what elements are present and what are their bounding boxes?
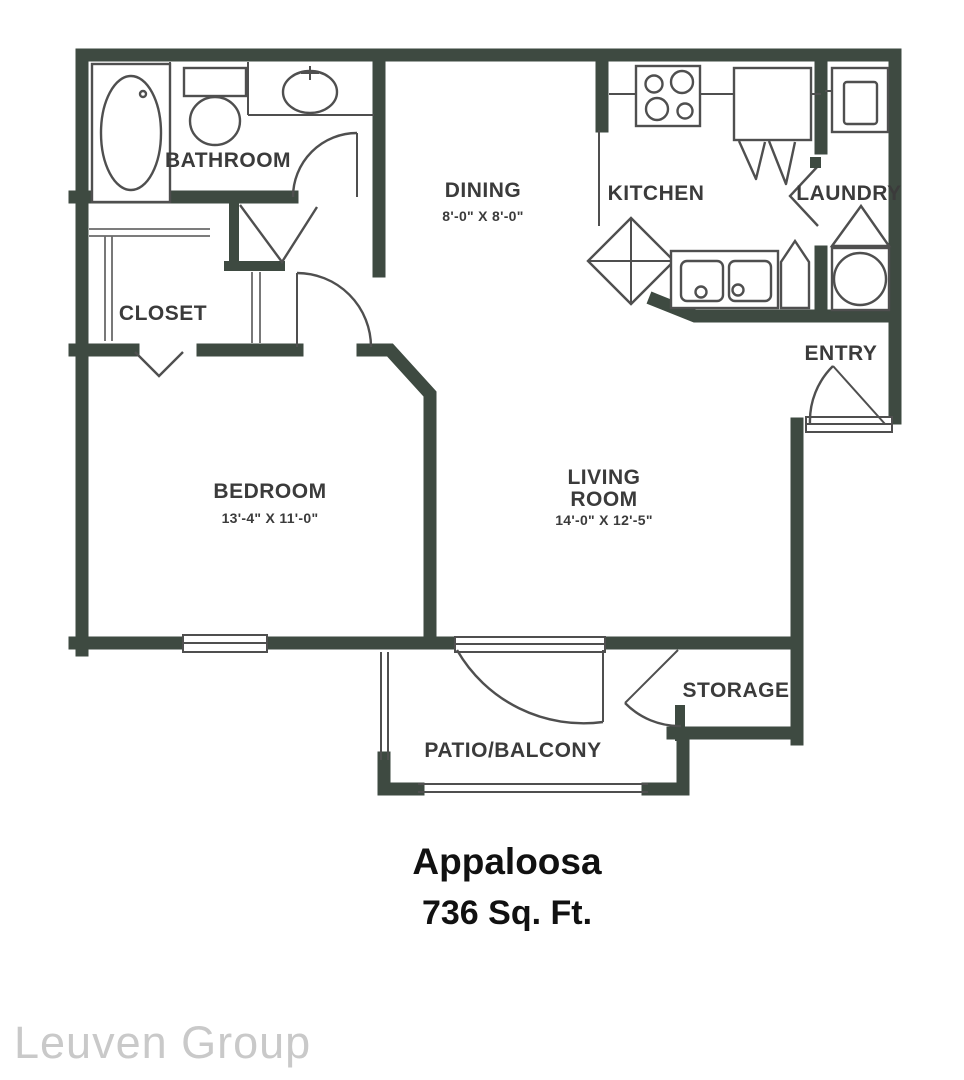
refrigerator-icon bbox=[734, 68, 811, 184]
dining-dimensions: 8'-0" X 8'-0" bbox=[442, 208, 523, 224]
watermark-text: Leuven Group bbox=[14, 1017, 311, 1068]
corner-cabinet-icon bbox=[781, 241, 809, 308]
patio-railing bbox=[381, 652, 648, 792]
closet-bifold-door bbox=[135, 352, 183, 376]
double-sink-icon bbox=[671, 251, 778, 308]
bedroom-dimensions: 13'-4" X 11'-0" bbox=[222, 510, 319, 526]
bedroom-label: BEDROOM bbox=[213, 480, 326, 503]
plan-area: 736 Sq. Ft. bbox=[422, 894, 592, 932]
storage-label: STORAGE bbox=[683, 679, 790, 702]
bathtub-icon bbox=[92, 64, 170, 202]
kitchen-label: KITCHEN bbox=[608, 182, 705, 205]
entry-door bbox=[810, 366, 885, 424]
bathroom-label: BATHROOM bbox=[165, 149, 291, 172]
bedroom-window bbox=[183, 635, 267, 652]
bedroom-living-wall bbox=[363, 350, 430, 643]
dining-label: DINING bbox=[445, 179, 522, 202]
living-room-dimensions: 14'-0" X 12'-5" bbox=[555, 512, 653, 528]
patio-door-sill bbox=[455, 637, 605, 652]
living-room-label-line1: LIVING bbox=[567, 466, 640, 489]
hall-closet-doors bbox=[240, 205, 317, 262]
closet-label: CLOSET bbox=[119, 302, 207, 325]
plan-name: Appaloosa bbox=[412, 841, 602, 882]
dryer-icon bbox=[832, 206, 889, 310]
floorplan-page: BATHROOM CLOSET DINING 8'-0" X 8'-0" KIT… bbox=[0, 0, 964, 1080]
storage-door bbox=[625, 650, 681, 726]
bathroom-door bbox=[293, 133, 357, 197]
title-block: Appaloosa 736 Sq. Ft. bbox=[412, 841, 602, 932]
toilet-icon bbox=[184, 68, 246, 145]
washer-icon bbox=[832, 68, 888, 132]
bathroom-sink-icon bbox=[283, 66, 337, 113]
bedroom-door bbox=[297, 273, 371, 347]
kitchen-island-icon bbox=[588, 218, 674, 304]
patio-southwest-corner bbox=[384, 758, 418, 789]
entry-door-sill bbox=[806, 417, 892, 432]
floorplan-drawing: BATHROOM CLOSET DINING 8'-0" X 8'-0" KIT… bbox=[0, 0, 964, 1080]
laundry-label: LAUNDRY bbox=[796, 182, 901, 205]
patio-southeast-corner bbox=[648, 737, 683, 789]
patio-label: PATIO/BALCONY bbox=[424, 739, 601, 762]
patio-door bbox=[457, 650, 603, 723]
living-room-label-line2: ROOM bbox=[570, 488, 637, 511]
entry-label: ENTRY bbox=[805, 342, 878, 365]
stove-icon bbox=[636, 66, 700, 126]
